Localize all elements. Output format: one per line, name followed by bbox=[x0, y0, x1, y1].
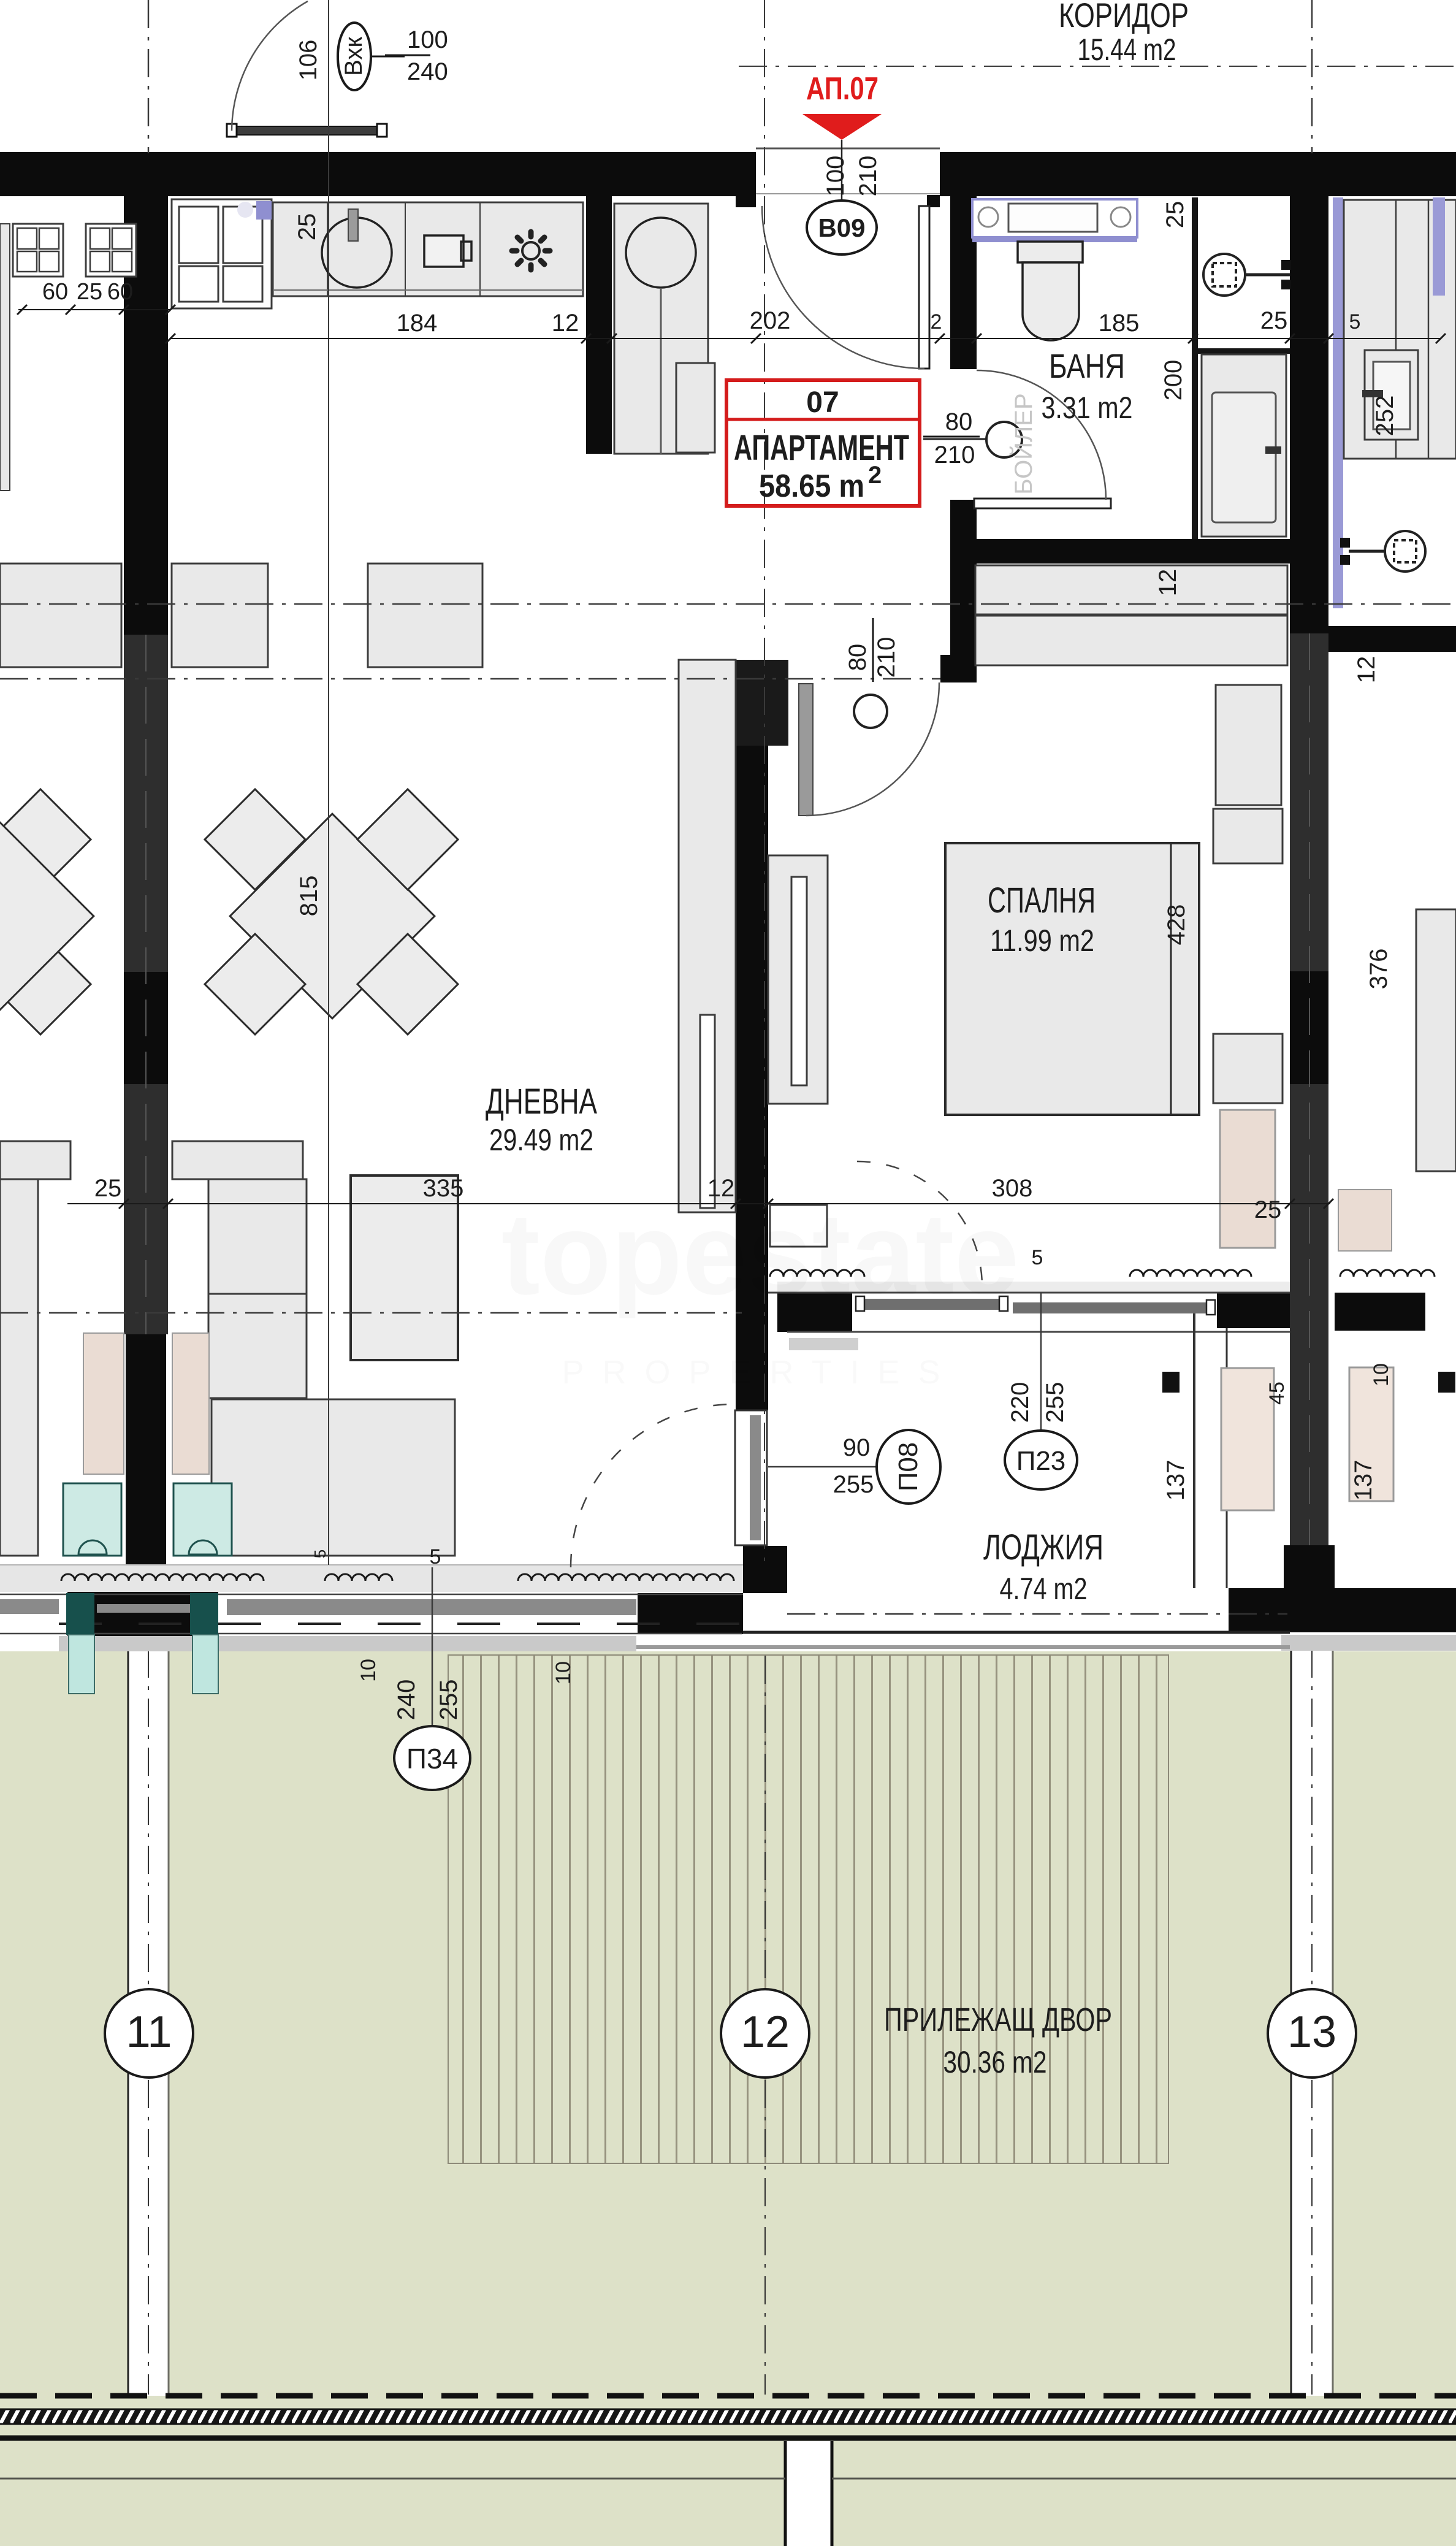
svg-text:PROPERTIES: PROPERTIES bbox=[562, 1354, 958, 1391]
svg-text:220: 220 bbox=[1007, 1382, 1034, 1423]
svg-text:29.49 m2: 29.49 m2 bbox=[489, 1123, 593, 1157]
svg-text:25: 25 bbox=[294, 213, 321, 241]
svg-text:3.31 m2: 3.31 m2 bbox=[1042, 391, 1133, 425]
svg-text:80: 80 bbox=[945, 408, 973, 435]
svg-text:B09: B09 bbox=[818, 213, 865, 242]
svg-text:2: 2 bbox=[931, 310, 942, 334]
svg-text:12: 12 bbox=[552, 310, 579, 337]
svg-text:200: 200 bbox=[1160, 360, 1187, 401]
svg-text:БАНЯ: БАНЯ bbox=[1049, 346, 1125, 385]
svg-text:210: 210 bbox=[855, 156, 882, 197]
svg-text:КОРИДОР: КОРИДОР bbox=[1059, 0, 1189, 34]
svg-text:80: 80 bbox=[844, 644, 871, 671]
svg-text:25: 25 bbox=[1254, 1196, 1282, 1223]
svg-text:4.74 m2: 4.74 m2 bbox=[1000, 1572, 1088, 1606]
svg-text:БОЙЛЕР: БОЙЛЕР bbox=[1009, 393, 1037, 494]
svg-text:106: 106 bbox=[295, 40, 322, 81]
svg-text:58.65 m: 58.65 m bbox=[759, 468, 864, 504]
svg-text:07: 07 bbox=[806, 386, 839, 419]
svg-text:5: 5 bbox=[430, 1545, 441, 1569]
svg-text:13: 13 bbox=[1287, 2008, 1336, 2057]
svg-text:10: 10 bbox=[1370, 1363, 1393, 1386]
svg-text:10: 10 bbox=[552, 1661, 575, 1684]
svg-text:СПАЛНЯ: СПАЛНЯ bbox=[988, 881, 1096, 920]
svg-text:15.44 m2: 15.44 m2 bbox=[1078, 32, 1176, 67]
svg-text:45: 45 bbox=[1265, 1382, 1289, 1405]
svg-text:topestate: topestate bbox=[501, 1189, 1020, 1319]
svg-text:АПАРТАМЕНТ: АПАРТАМЕНТ bbox=[734, 428, 909, 468]
svg-text:П08: П08 bbox=[893, 1442, 923, 1492]
svg-text:П23: П23 bbox=[1016, 1446, 1066, 1476]
svg-text:12: 12 bbox=[741, 2008, 790, 2057]
svg-text:240: 240 bbox=[393, 1680, 420, 1721]
svg-text:210: 210 bbox=[873, 637, 900, 678]
svg-text:11: 11 bbox=[126, 2008, 172, 2057]
svg-text:137: 137 bbox=[1162, 1460, 1189, 1501]
svg-text:255: 255 bbox=[435, 1680, 462, 1721]
svg-text:12: 12 bbox=[1353, 656, 1380, 684]
svg-text:25: 25 bbox=[1260, 307, 1288, 334]
svg-text:335: 335 bbox=[423, 1175, 464, 1202]
svg-text:25: 25 bbox=[1162, 201, 1189, 229]
svg-text:428: 428 bbox=[1163, 904, 1190, 946]
svg-text:252: 252 bbox=[1371, 396, 1398, 437]
svg-text:185: 185 bbox=[1099, 310, 1140, 337]
svg-text:12: 12 bbox=[1154, 569, 1181, 597]
svg-text:5: 5 bbox=[1032, 1246, 1043, 1269]
svg-text:Вхк: Вхк bbox=[340, 37, 367, 76]
svg-text:240: 240 bbox=[407, 58, 448, 85]
svg-text:100: 100 bbox=[822, 156, 849, 197]
svg-text:60: 60 bbox=[107, 279, 133, 305]
svg-text:11.99 m2: 11.99 m2 bbox=[990, 923, 1094, 958]
svg-text:30.36 m2: 30.36 m2 bbox=[943, 2045, 1047, 2079]
svg-text:АП.07: АП.07 bbox=[806, 71, 879, 107]
svg-text:2: 2 bbox=[868, 462, 882, 489]
svg-text:376: 376 bbox=[1365, 949, 1392, 990]
svg-text:ДНЕВНА: ДНЕВНА bbox=[486, 1082, 597, 1122]
svg-text:255: 255 bbox=[1042, 1382, 1069, 1423]
svg-text:815: 815 bbox=[295, 876, 322, 917]
svg-text:100: 100 bbox=[407, 26, 448, 53]
svg-text:25: 25 bbox=[77, 279, 102, 305]
svg-text:25: 25 bbox=[94, 1175, 122, 1202]
svg-text:60: 60 bbox=[42, 279, 68, 305]
svg-text:184: 184 bbox=[397, 310, 438, 337]
svg-text:ПРИЛЕЖАЩ ДВОР: ПРИЛЕЖАЩ ДВОР bbox=[884, 2001, 1112, 2038]
svg-text:П34: П34 bbox=[406, 1743, 458, 1775]
svg-text:ЛОДЖИЯ: ЛОДЖИЯ bbox=[983, 1527, 1103, 1567]
svg-text:10: 10 bbox=[357, 1659, 380, 1682]
svg-text:90: 90 bbox=[843, 1434, 871, 1461]
svg-text:137: 137 bbox=[1350, 1460, 1377, 1501]
svg-text:5: 5 bbox=[1349, 310, 1361, 334]
svg-text:210: 210 bbox=[934, 442, 975, 468]
svg-text:5: 5 bbox=[311, 1550, 329, 1558]
svg-text:255: 255 bbox=[833, 1471, 874, 1498]
svg-text:202: 202 bbox=[750, 307, 791, 334]
